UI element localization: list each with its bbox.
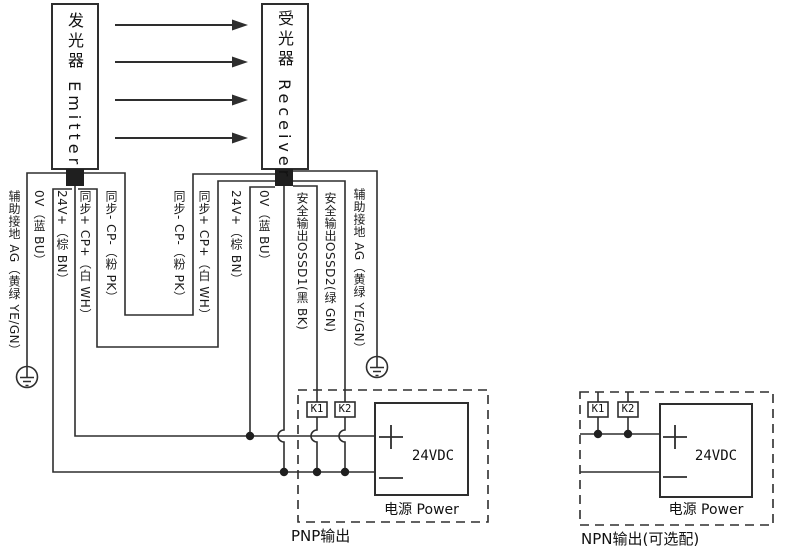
relay-k1-box — [588, 402, 608, 417]
relay-k2-box — [335, 402, 355, 417]
ossd1-wire — [293, 186, 317, 472]
relay-k2-box — [618, 402, 638, 417]
emitter-24v-wire-and-24v-bus — [75, 186, 377, 436]
emitter-connector-icon — [66, 169, 84, 186]
junction-dot — [624, 430, 632, 438]
light-beam-arrow — [115, 20, 248, 31]
junction-dot — [280, 468, 288, 476]
junction-dot — [594, 430, 602, 438]
npn-power-supply-box — [660, 404, 752, 497]
receiver-connector-icon — [275, 169, 293, 186]
emitter-0v-wire-and-0v-bus — [53, 189, 375, 472]
earth-ground-icon — [17, 367, 38, 388]
ossd2-wire — [293, 181, 345, 472]
receiver-box — [262, 4, 308, 169]
sync-minus-wire — [84, 173, 275, 315]
junction-dot — [341, 468, 349, 476]
junction-dot — [246, 432, 254, 440]
junction-dot — [313, 468, 321, 476]
receiver-24v-wire — [250, 187, 275, 436]
safety-light-curtain-wiring-diagram: 发光器 Emitter 受光器 Receiver 辅助接地 AG（黄绿 YE/G… — [0, 0, 792, 554]
receiver-ground-wire — [293, 171, 377, 357]
pnp-power-supply-box — [375, 403, 468, 495]
light-beam-arrows — [115, 20, 248, 144]
light-beam-arrow — [115, 133, 248, 144]
emitter-ground-wire — [27, 173, 66, 366]
receiver-0v-wire — [278, 186, 284, 472]
emitter-box — [52, 4, 98, 169]
light-beam-arrow — [115, 95, 248, 106]
light-beam-arrow — [115, 57, 248, 68]
relay-k1-box — [307, 402, 327, 417]
sync-plus-wire — [78, 181, 275, 347]
diagram-canvas — [0, 0, 792, 554]
earth-ground-icon — [367, 357, 388, 378]
